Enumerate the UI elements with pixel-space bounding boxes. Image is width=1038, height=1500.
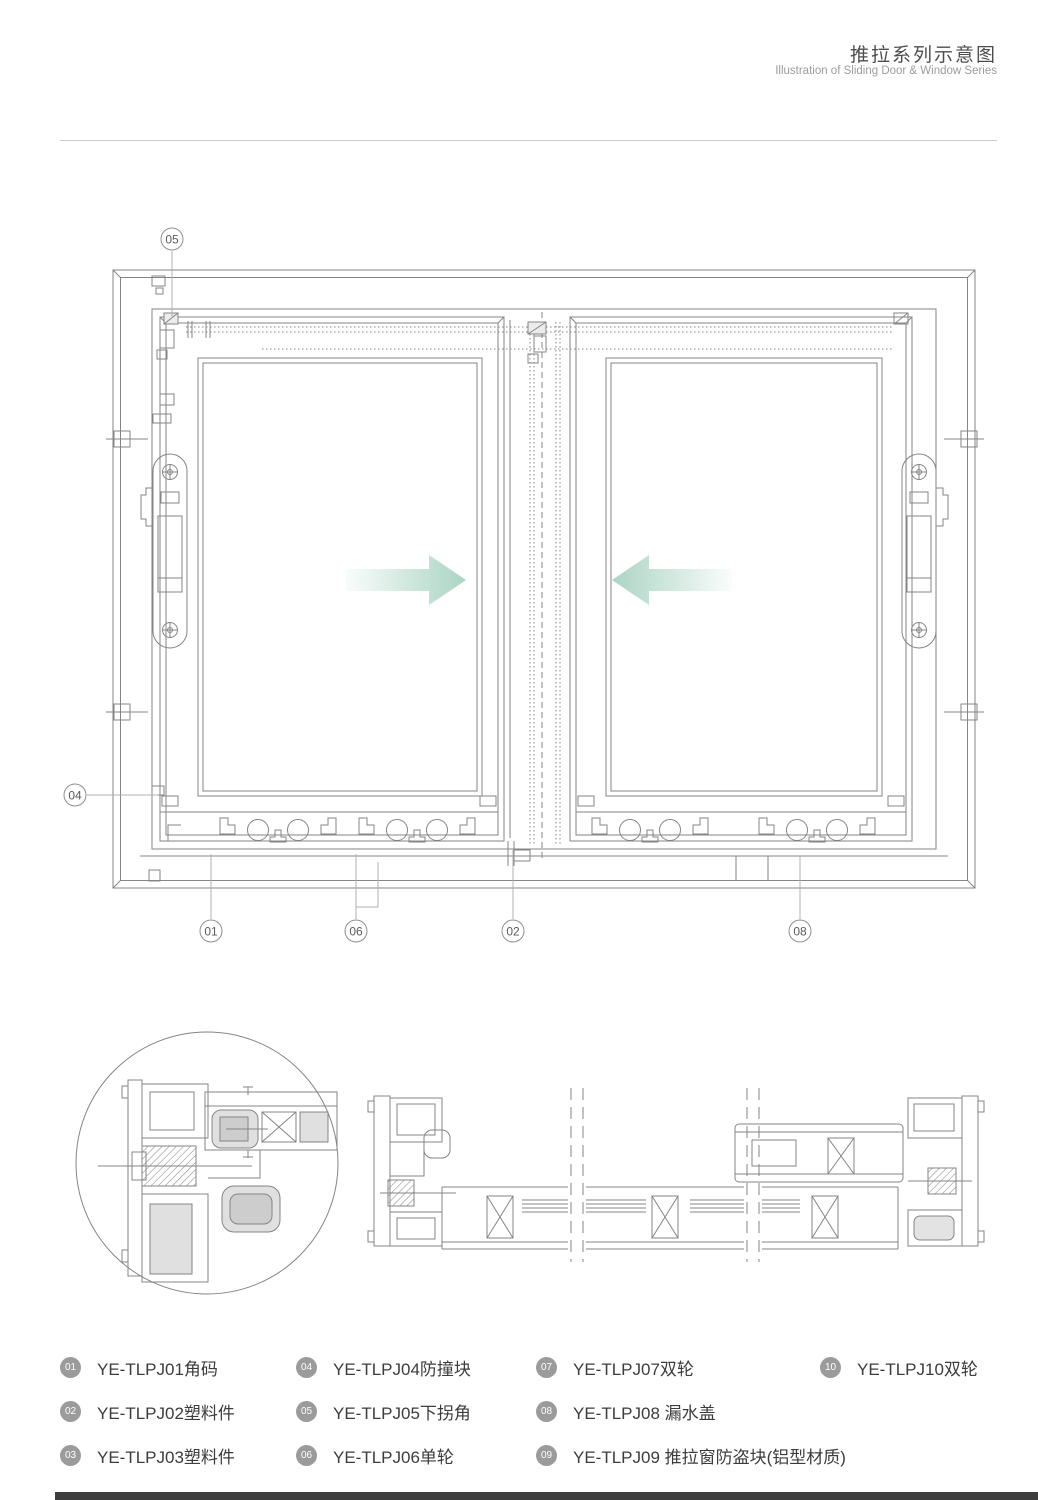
callout-06: 06 [345, 920, 368, 943]
legend-item-01: 01YE-TLPJ01角码 [60, 1356, 235, 1378]
legend-item-03: 03YE-TLPJ03塑料件 [60, 1444, 235, 1466]
section-view [368, 1088, 984, 1262]
legend-label-10: YE-TLPJ10双轮 [857, 1355, 978, 1380]
arrow-left-icon [612, 555, 732, 605]
legend-item-07: 07YE-TLPJ07双轮 [536, 1356, 846, 1378]
technical-drawing [0, 0, 1038, 1500]
legend-badge-03: 03 [60, 1445, 81, 1466]
legend-label-03: YE-TLPJ03塑料件 [97, 1443, 235, 1468]
callout-04: 04 [64, 784, 87, 807]
arrow-right-icon [346, 555, 466, 605]
legend-badge-01: 01 [60, 1357, 81, 1378]
legend-item-04: 04YE-TLPJ04防撞块 [296, 1356, 471, 1378]
legend-badge-10: 10 [820, 1357, 841, 1378]
legend-item-09: 09YE-TLPJ09 推拉窗防盗块(铝型材质) [536, 1444, 846, 1466]
legend-badge-09: 09 [536, 1445, 557, 1466]
legend-badge-05: 05 [296, 1401, 317, 1422]
window-front-view [106, 270, 984, 888]
legend-badge-02: 02 [60, 1401, 81, 1422]
legend-item-06: 06YE-TLPJ06单轮 [296, 1444, 471, 1466]
callout-08: 08 [789, 920, 812, 943]
legend-item-05: 05YE-TLPJ05下拐角 [296, 1400, 471, 1422]
legend-label-02: YE-TLPJ02塑料件 [97, 1399, 235, 1424]
legend-label-06: YE-TLPJ06单轮 [333, 1443, 454, 1468]
legend-item-10: 10YE-TLPJ10双轮 [820, 1356, 978, 1378]
legend-column-4: 10YE-TLPJ10双轮 [820, 1356, 978, 1400]
legend-badge-04: 04 [296, 1357, 317, 1378]
callout-01: 01 [200, 920, 223, 943]
callout-02: 02 [502, 920, 525, 943]
legend-badge-07: 07 [536, 1357, 557, 1378]
legend-label-09: YE-TLPJ09 推拉窗防盗块(铝型材质) [573, 1443, 846, 1468]
legend-column-2: 04YE-TLPJ04防撞块05YE-TLPJ05下拐角06YE-TLPJ06单… [296, 1356, 471, 1488]
footer-bar [55, 1492, 1038, 1500]
legend-column-3: 07YE-TLPJ07双轮08YE-TLPJ08 漏水盖09YE-TLPJ09 … [536, 1356, 846, 1488]
legend-item-08: 08YE-TLPJ08 漏水盖 [536, 1400, 846, 1422]
detail-circle-view [76, 1032, 338, 1294]
legend-column-1: 01YE-TLPJ01角码02YE-TLPJ02塑料件03YE-TLPJ03塑料… [60, 1356, 235, 1488]
legend-badge-08: 08 [536, 1401, 557, 1422]
legend-badge-06: 06 [296, 1445, 317, 1466]
callout-05: 05 [161, 228, 184, 251]
legend-label-07: YE-TLPJ07双轮 [573, 1355, 694, 1380]
direction-arrows [346, 555, 732, 605]
legend-label-05: YE-TLPJ05下拐角 [333, 1399, 471, 1424]
legend-label-04: YE-TLPJ04防撞块 [333, 1355, 471, 1380]
legend-item-02: 02YE-TLPJ02塑料件 [60, 1400, 235, 1422]
legend-label-08: YE-TLPJ08 漏水盖 [573, 1399, 716, 1424]
legend-label-01: YE-TLPJ01角码 [97, 1355, 218, 1380]
